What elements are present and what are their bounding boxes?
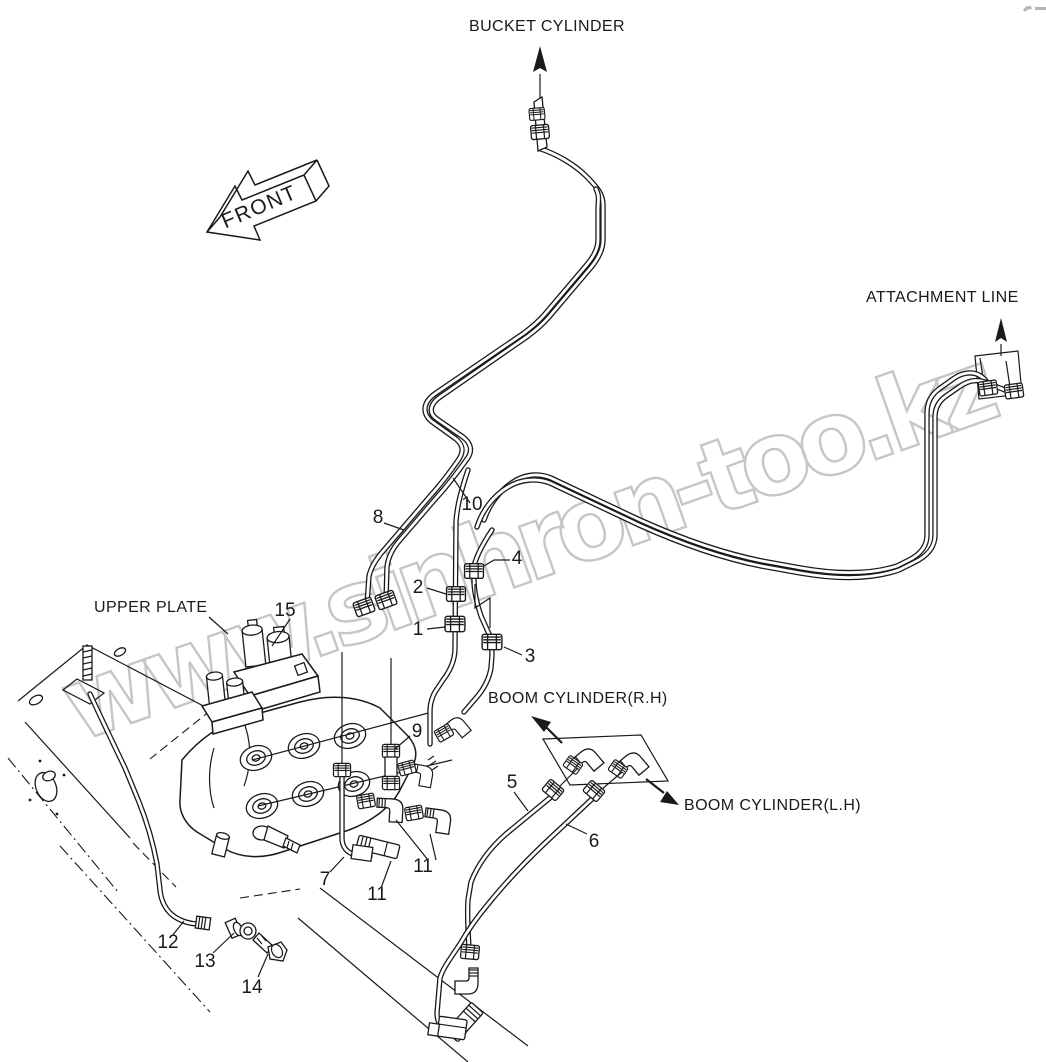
frame-lines — [8, 722, 528, 1062]
clamp-fitting-13 — [225, 918, 256, 939]
callout-5: 5 — [507, 772, 518, 794]
pipe6-foot — [428, 1015, 467, 1040]
bucket-cylinder-connector — [529, 46, 550, 151]
valve-bottom-fitting — [212, 826, 300, 857]
diagram-canvas: www.sinhron-too.kz — [0, 0, 1046, 1062]
callout-9: 9 — [412, 721, 423, 743]
callout-10: 10 — [461, 494, 482, 516]
front-direction-arrow: FRONT — [207, 160, 329, 240]
boom-lh-arrow — [646, 779, 679, 805]
callout-15: 15 — [274, 600, 295, 622]
label-attachment-line: ATTACHMENT LINE — [866, 289, 1019, 307]
callout-4: 4 — [512, 548, 523, 570]
callout-11a: 11 — [413, 856, 433, 878]
valve-ports — [237, 720, 373, 823]
hose-threaded-tip — [195, 916, 211, 930]
callout-7: 7 — [320, 869, 331, 891]
callout-3: 3 — [525, 646, 536, 668]
callout-2: 2 — [413, 577, 424, 599]
label-bucket-cylinder: BUCKET CYLINDER — [469, 18, 625, 36]
callout-1: 1 — [413, 619, 424, 641]
callout-14: 14 — [241, 977, 262, 999]
parts-diagram-page: www.sinhron-too.kz — [0, 0, 1046, 1062]
label-boom-cylinder-rh: BOOM CYLINDER(R.H) — [488, 690, 668, 708]
bolt-14 — [253, 933, 287, 961]
callout-6: 6 — [589, 831, 600, 853]
corner-watermark-fragment — [1023, 6, 1046, 12]
label-boom-cylinder-lh: BOOM CYLINDER(L.H) — [684, 797, 861, 815]
callout-13: 13 — [194, 951, 215, 973]
label-upper-plate: UPPER PLATE — [94, 599, 207, 617]
callout-11b: 11 — [367, 884, 387, 906]
stud-bolt — [83, 646, 92, 680]
callout-8: 8 — [373, 507, 384, 529]
callout-12: 12 — [157, 932, 178, 954]
front-arrow-label: FRONT — [218, 181, 300, 233]
grommet — [29, 760, 66, 816]
